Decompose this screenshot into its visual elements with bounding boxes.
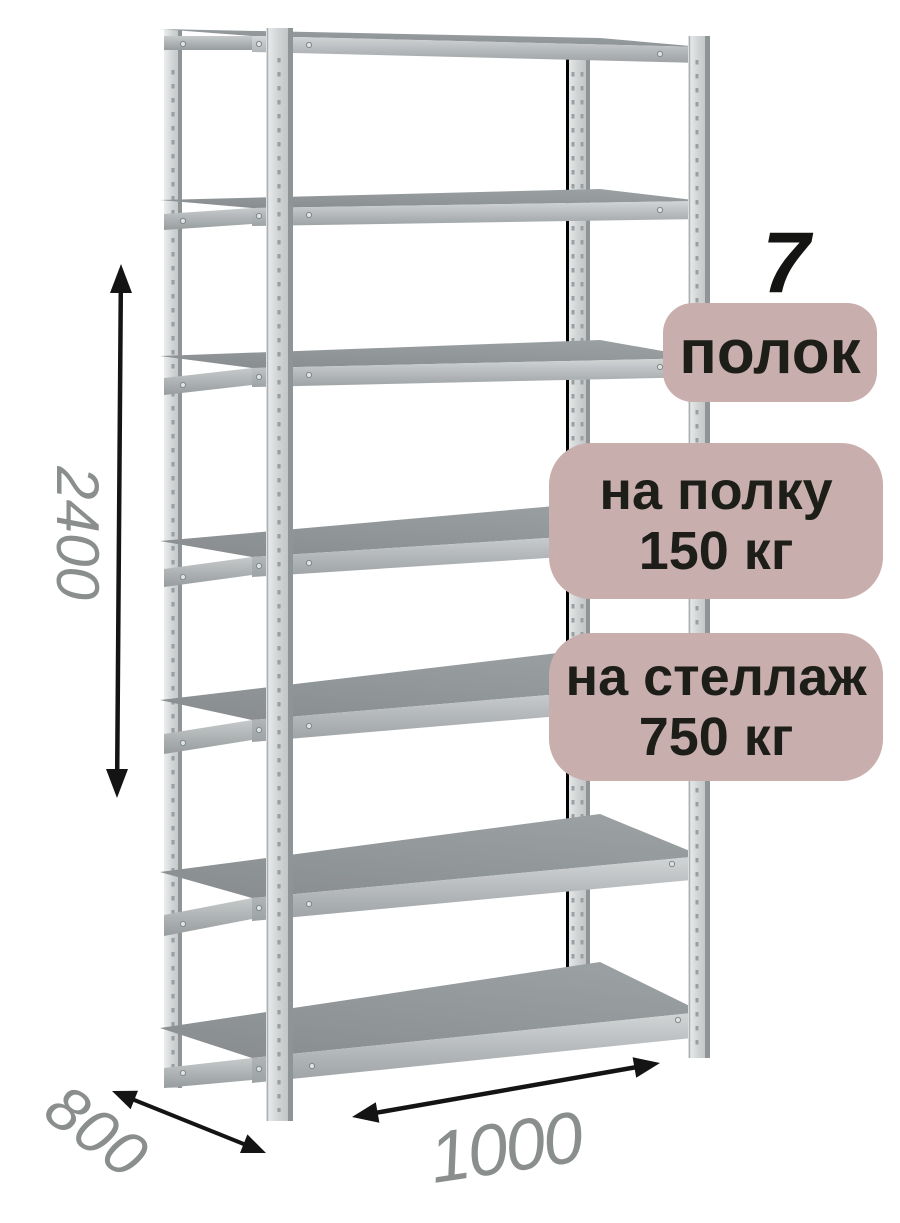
shelf-count-label: полок <box>663 317 877 388</box>
shelf-3 <box>160 340 702 395</box>
per-shelf-load-line2: 150 кг <box>549 521 883 581</box>
shelving-rack-illustration <box>0 0 900 1200</box>
shelf-6 <box>160 814 702 936</box>
per-shelf-load-badge: на полку 150 кг <box>549 443 883 599</box>
per-rack-load-badge: на стеллаж 750 кг <box>549 633 883 781</box>
height-dimension-label: 2400 <box>37 383 107 683</box>
shelf-count-label-badge: полок <box>663 303 877 402</box>
shelf-1 <box>160 29 702 63</box>
per-rack-load-line2: 750 кг <box>549 707 883 767</box>
front-left-post <box>266 28 293 1121</box>
shelf-2 <box>160 189 702 230</box>
shelf-count: 7 <box>706 216 866 311</box>
per-shelf-load-line1: на полку <box>549 461 883 521</box>
per-rack-load-line1: на стеллаж <box>549 647 883 707</box>
